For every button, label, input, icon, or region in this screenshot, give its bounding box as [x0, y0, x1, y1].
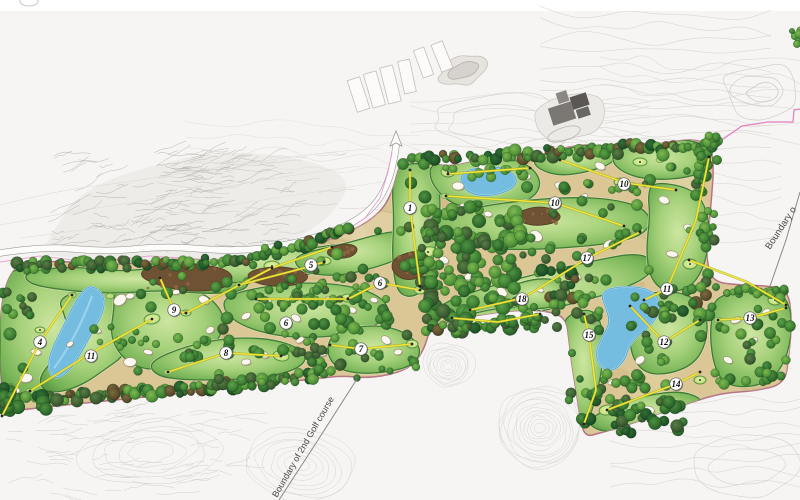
svg-text:4: 4 [37, 337, 43, 347]
svg-text:14: 14 [672, 379, 682, 389]
svg-text:17: 17 [583, 253, 593, 263]
svg-text:11: 11 [663, 284, 672, 294]
svg-text:8: 8 [224, 348, 229, 358]
svg-text:15: 15 [585, 330, 595, 340]
svg-text:11: 11 [87, 351, 96, 361]
svg-text:10: 10 [620, 179, 630, 189]
svg-text:12: 12 [660, 337, 670, 347]
svg-text:6: 6 [284, 318, 289, 328]
svg-text:5: 5 [309, 260, 314, 270]
svg-text:9: 9 [172, 305, 177, 315]
svg-text:1: 1 [408, 203, 413, 213]
svg-text:6: 6 [378, 278, 383, 288]
svg-text:13: 13 [746, 313, 756, 323]
svg-text:10: 10 [551, 198, 561, 208]
svg-text:7: 7 [359, 344, 364, 354]
svg-text:18: 18 [518, 294, 528, 304]
